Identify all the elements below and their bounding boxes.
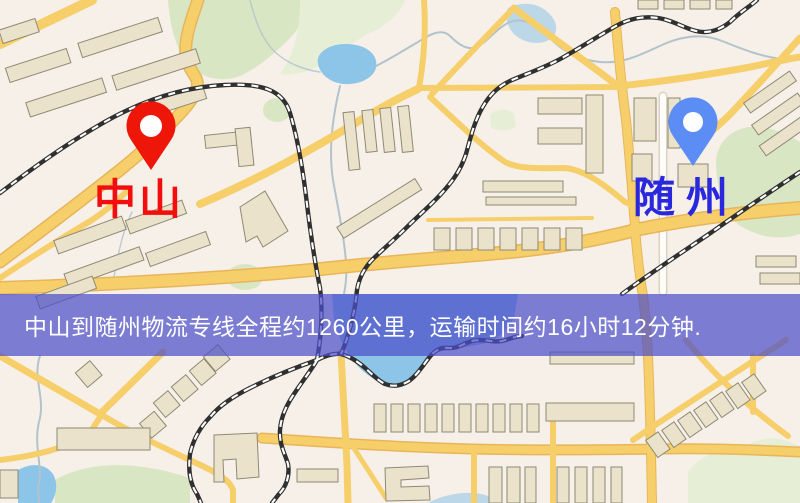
destination-pin-icon[interactable] xyxy=(661,96,725,168)
origin-label: 中山 xyxy=(94,179,184,221)
destination-label: 随州 xyxy=(633,177,739,219)
map-screenshot: 中山 随州 中山到随州物流专线全程约1260公里，运输时间约16小时12分钟. xyxy=(0,0,800,503)
route-info-banner: 中山到随州物流专线全程约1260公里，运输时间约16小时12分钟. xyxy=(0,294,800,356)
map-canvas[interactable] xyxy=(0,0,800,503)
route-info-text: 中山到随州物流专线全程约1260公里，运输时间约16小时12分钟. xyxy=(0,308,701,342)
origin-pin-icon[interactable] xyxy=(119,100,183,172)
